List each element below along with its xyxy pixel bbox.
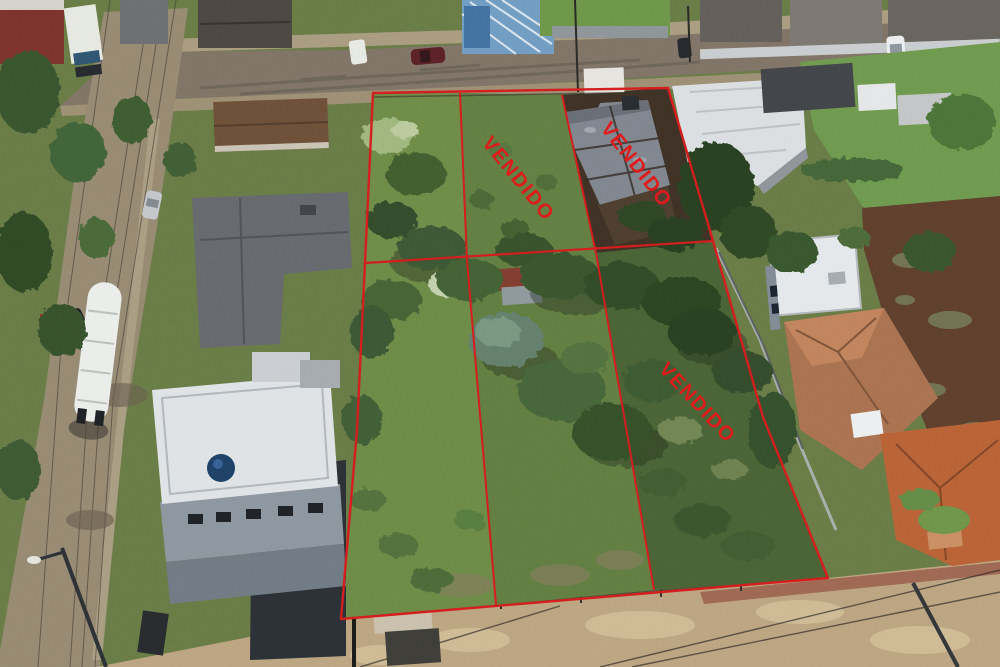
aerial-photo: VENDIDO VENDIDO VENDIDO <box>0 0 1000 667</box>
grain-overlay <box>0 0 1000 667</box>
